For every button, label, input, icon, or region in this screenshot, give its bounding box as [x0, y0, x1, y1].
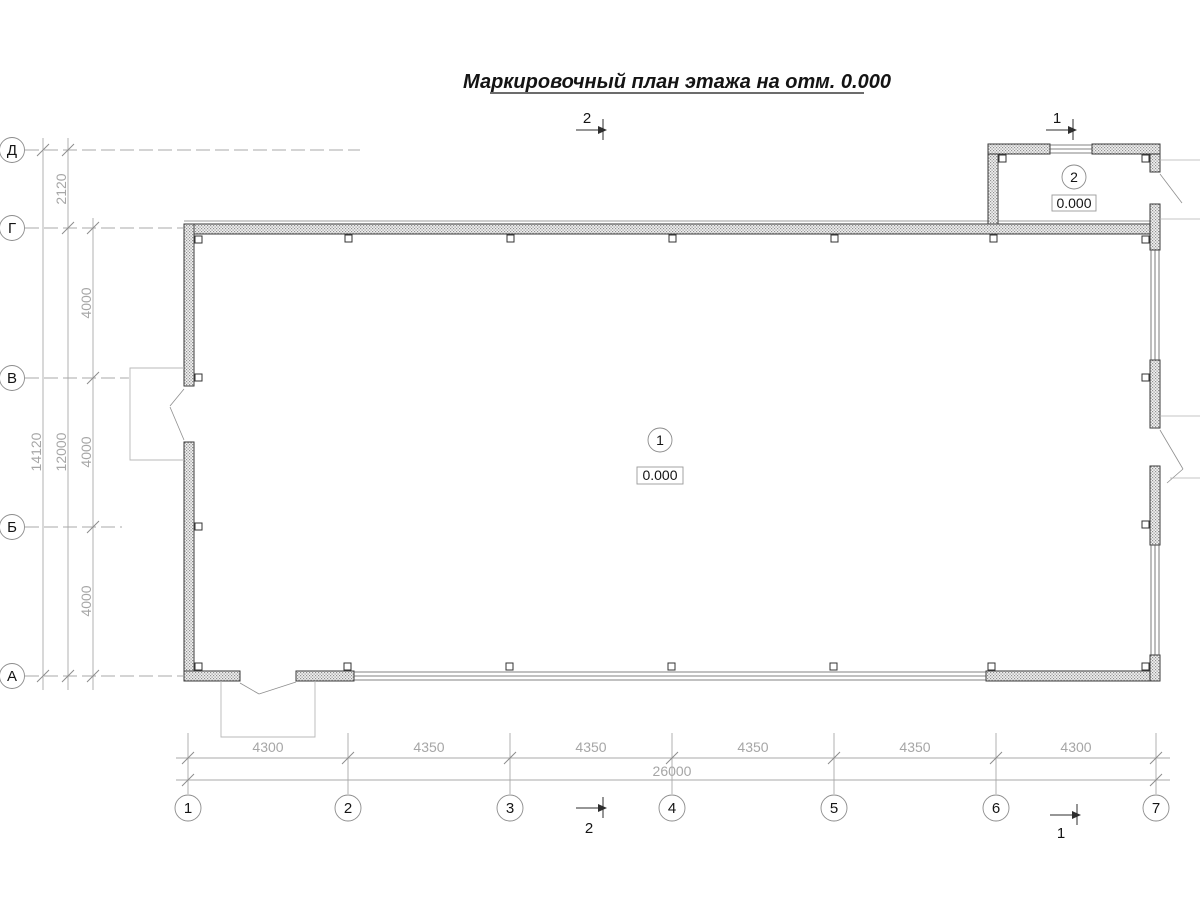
dim-left-seg-3: 4000 [78, 585, 94, 616]
row-axis-label-0: Д [7, 142, 17, 159]
dim-bottom-seg-4: 4350 [899, 739, 930, 755]
dim-left-seg-1: 4000 [78, 287, 94, 318]
right-window-band-upper [1151, 250, 1159, 360]
building-walls [184, 144, 1160, 681]
dim-bottom-seg-1: 4350 [413, 739, 444, 755]
col-axis-label-5: 6 [992, 800, 1000, 817]
annex-top-window [1050, 145, 1092, 153]
room2-number: 2 [1070, 169, 1078, 185]
dim-left-seg-2: 4000 [78, 436, 94, 467]
dim-left-overall: 14120 [28, 432, 44, 471]
dim-bottom-seg-2: 4350 [575, 739, 606, 755]
bottom-window-band [354, 672, 986, 680]
section2-top-label: 2 [583, 110, 591, 127]
row-axis-label-1: Г [8, 220, 16, 237]
porches [130, 368, 315, 737]
bottom-dimension-chain: 4300 4350 4350 4350 4350 4300 26000 [176, 733, 1170, 794]
dim-bottom-seg-5: 4300 [1060, 739, 1091, 755]
drawing-canvas: Маркировочный план этажа на отм. 0.000 1… [0, 0, 1200, 900]
section-mark-2-top: 2 [576, 110, 607, 140]
left-dimension-chain: 14120 12000 2120 4000 4000 4000 [28, 138, 99, 690]
right-edge-leaders [1160, 160, 1200, 478]
room1-number: 1 [656, 432, 664, 448]
section1-bottom-label: 1 [1057, 825, 1065, 842]
room-marker-1: 1 0.000 [637, 428, 683, 484]
room-marker-2: 2 0.000 [1052, 165, 1096, 211]
section-mark-1-top: 1 [1046, 110, 1077, 140]
drawing-title: Маркировочный план этажа на отм. 0.000 [463, 71, 891, 93]
room1-level: 0.000 [642, 467, 677, 483]
section2-bottom-label: 2 [585, 820, 593, 837]
dim-bottom-overall: 26000 [653, 763, 692, 779]
section1-top-label: 1 [1053, 110, 1061, 127]
annex-top-wall-left [988, 144, 1050, 154]
col-axis-label-1: 2 [344, 800, 352, 817]
dim-left-seg-0: 2120 [53, 173, 69, 204]
left-porch [130, 368, 184, 460]
col-axis-label-4: 5 [830, 800, 838, 817]
page-title: Маркировочный план этажа на отм. 0.000 [463, 71, 891, 93]
door-swings [170, 174, 1183, 694]
dim-left-inner: 12000 [53, 432, 69, 471]
row-axis-bubbles: Д Г В Б А [0, 138, 25, 689]
row-axis-label-3: Б [7, 519, 17, 536]
col-axis-label-0: 1 [184, 800, 192, 817]
section-mark-1-bottom: 1 [1050, 804, 1081, 842]
dim-bottom-seg-3: 4350 [737, 739, 768, 755]
col-axis-bubbles: 1 2 3 4 5 6 7 [175, 795, 1169, 821]
annex-top-wall-right [1092, 144, 1160, 154]
room2-level: 0.000 [1056, 195, 1091, 211]
col-axis-label-2: 3 [506, 800, 514, 817]
row-axis-label-4: А [7, 668, 17, 685]
annex-left-wall [988, 144, 998, 224]
col-axis-label-6: 7 [1152, 800, 1160, 817]
section-mark-2-bottom: 2 [576, 797, 607, 837]
dim-bottom-seg-0: 4300 [252, 739, 283, 755]
right-window-band-lower [1151, 545, 1159, 655]
row-axis-label-2: В [7, 370, 17, 387]
bottom-porch [221, 681, 315, 737]
col-axis-label-3: 4 [668, 800, 676, 817]
